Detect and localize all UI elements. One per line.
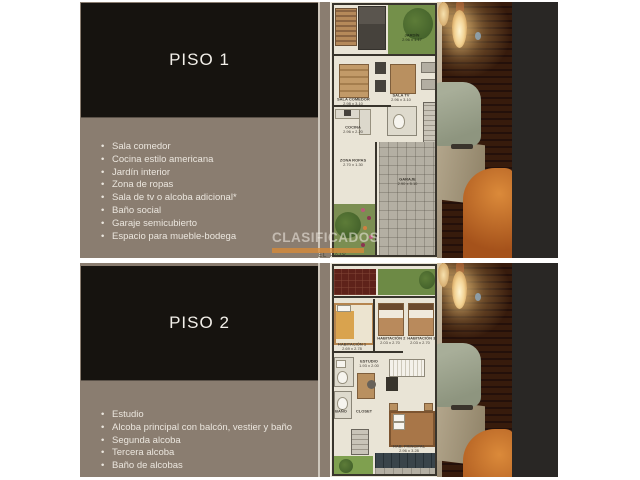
wall xyxy=(373,299,375,351)
storage-unit xyxy=(358,6,386,50)
pillow-icon xyxy=(393,422,405,430)
sage-armchair xyxy=(437,343,481,407)
pendant-bulb-icon xyxy=(438,2,449,26)
panel-divider-line xyxy=(318,2,320,258)
bush-icon xyxy=(339,459,353,473)
flyer-page: PISO 1 Sala comedor Cocina estilo americ… xyxy=(0,0,640,480)
watermark-text: CLASIFICADOS xyxy=(272,230,379,245)
stairs xyxy=(423,102,438,146)
feature-item: Cocina estilo americana xyxy=(101,154,316,167)
armchair-base xyxy=(451,144,473,149)
balcony xyxy=(334,269,376,295)
feature-item: Baño social xyxy=(101,205,316,218)
wall xyxy=(333,296,436,298)
garage-patio xyxy=(379,142,436,256)
room-label-garaje: GARAJE2.90 x 5.10 xyxy=(385,178,431,187)
room-label-closet: CLOSET xyxy=(354,410,373,414)
room-label-sala-comedor: SALA COMEDOR2.98 x 3.10 xyxy=(337,98,369,107)
pendant-bulb-icon xyxy=(452,10,467,48)
watermark-subtext: EL PAIS xyxy=(318,253,382,259)
piso1-title-box: PISO 1 xyxy=(81,3,318,118)
feature-item: Baño de alcobas xyxy=(101,460,316,473)
piso2-title: PISO 2 xyxy=(169,313,230,333)
panel-divider-line xyxy=(318,263,320,477)
feature-item: Tercera alcoba xyxy=(101,447,316,460)
feature-item: Zona de ropas xyxy=(101,179,316,192)
wall xyxy=(386,377,398,391)
feature-item: Jardín interior xyxy=(101,167,316,180)
interior-photo-bottom xyxy=(437,263,512,477)
watermark: CLASIFICADOS EL PAIS xyxy=(272,229,382,259)
feature-item: Segunda alcoba xyxy=(101,435,316,448)
room-label-hab-ppal: HAB. PRINCIPAL2.96 x 3.28 xyxy=(390,445,428,454)
toilet-icon xyxy=(337,397,348,410)
dark-wall-strip xyxy=(512,263,558,477)
roof-slate xyxy=(375,453,436,468)
bed-blanket xyxy=(336,311,354,339)
dark-wall-strip xyxy=(512,2,558,258)
armchair-plan xyxy=(421,79,436,90)
feature-item: Sala de tv o alcoba adicional* xyxy=(101,192,316,205)
toilet-icon xyxy=(393,114,405,129)
flower-icon xyxy=(361,208,365,212)
sage-armchair xyxy=(437,82,481,146)
desk-chair-icon xyxy=(367,380,376,389)
piso1-section: PISO 1 Sala comedor Cocina estilo americ… xyxy=(80,2,558,258)
tv-unit xyxy=(375,62,386,74)
bed-second xyxy=(378,303,404,336)
pendant-bulb-icon xyxy=(475,293,481,301)
room-label-bano: BAÑO xyxy=(333,410,349,414)
stove-icon xyxy=(344,110,351,116)
feature-item: Alcoba principal con balcón, vestier y b… xyxy=(101,422,316,435)
room-label-hab2: HABITACIÓN 22.03 x 2.70 xyxy=(377,337,403,346)
armchair-base xyxy=(451,405,473,410)
tv-unit xyxy=(375,80,386,92)
pillow-icon xyxy=(393,414,405,422)
watermark-bar xyxy=(272,248,364,253)
piso2-feature-list: Estudio Alcoba principal con balcón, ves… xyxy=(101,409,316,473)
room-label-sala-tv: SALA TV2.96 x 3.10 xyxy=(387,94,416,103)
toilet-icon xyxy=(337,371,348,384)
piso2-title-box: PISO 2 xyxy=(81,266,318,381)
room-label-zona-ropas: ZONA ROPAS2.70 x 1.30 xyxy=(337,159,369,168)
walkway xyxy=(375,468,436,475)
room-label-estudio: ESTUDIO1.93 x 2.00 xyxy=(358,360,380,369)
feature-item: Sala comedor xyxy=(101,141,316,154)
pendant-bulb-icon xyxy=(452,271,467,309)
nightstand xyxy=(424,403,433,411)
armchair-plan xyxy=(421,62,436,73)
laundry-deck xyxy=(335,8,357,46)
piso1-floorplan: JARDÍN2.96 x 1.17 SALA COMEDOR2.98 x 3.1… xyxy=(330,2,438,258)
room-label-cocina: COCINA2.96 x 2.20 xyxy=(337,126,369,135)
vestier-closet xyxy=(389,359,425,377)
room-label-jardin: JARDÍN2.96 x 1.17 xyxy=(394,34,431,43)
pillow-icon xyxy=(337,305,351,312)
dining-table xyxy=(339,64,369,98)
pendant-bulb-icon xyxy=(438,263,449,287)
stairs xyxy=(351,429,369,455)
wall xyxy=(333,54,436,56)
piso1-title: PISO 1 xyxy=(169,50,230,70)
tree-icon xyxy=(419,271,435,289)
orange-chair xyxy=(463,168,512,258)
flower-icon xyxy=(367,216,371,220)
room-label-hab3: HABITACIÓN 32.03 x 2.70 xyxy=(407,337,433,346)
nightstand xyxy=(389,403,398,411)
piso2-floorplan: HABITACIÓN 12.69 x 2.78 HABITACIÓN 22.03… xyxy=(330,263,438,477)
feature-item: Estudio xyxy=(101,409,316,422)
interior-photo-top xyxy=(437,2,512,258)
room-label-hab1: HABITACIÓN 12.69 x 2.78 xyxy=(335,343,369,352)
sofa xyxy=(390,64,416,94)
sink-icon xyxy=(336,360,346,368)
bed-third xyxy=(408,303,434,336)
piso2-section: PISO 2 Estudio Alcoba principal con balc… xyxy=(80,263,558,477)
pendant-bulb-icon xyxy=(475,32,481,40)
